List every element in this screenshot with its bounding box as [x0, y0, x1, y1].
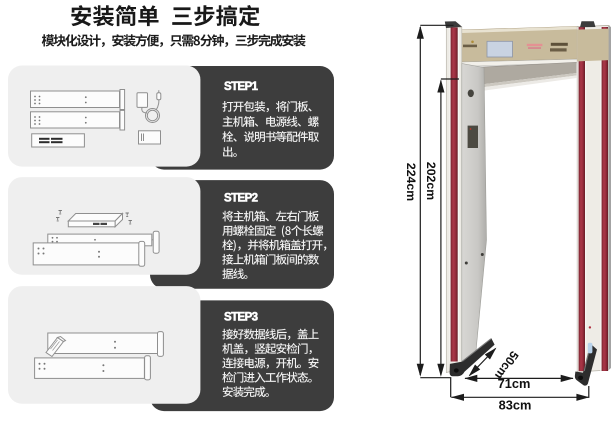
- svg-text:STEP1: STEP1: [224, 81, 259, 93]
- svg-text:STEP2: STEP2: [224, 193, 258, 205]
- svg-text:224cm: 224cm: [404, 163, 418, 201]
- svg-text:202cm: 202cm: [424, 162, 438, 200]
- svg-text:STEP3: STEP3: [224, 312, 258, 324]
- svg-text:83cm: 83cm: [499, 397, 532, 412]
